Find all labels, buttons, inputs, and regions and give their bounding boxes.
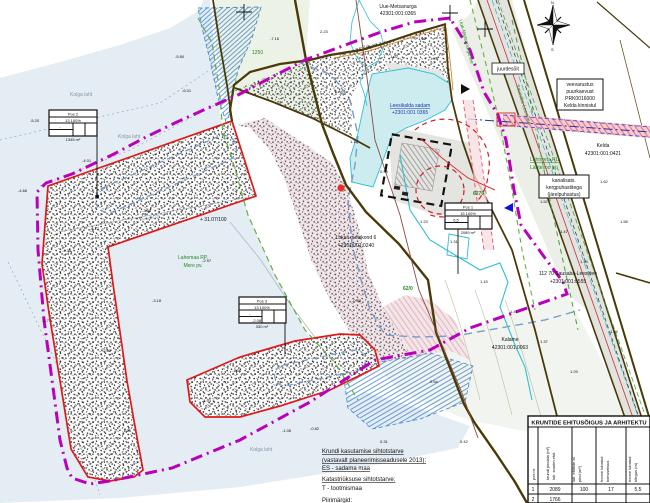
svg-text:2089 m²: 2089 m² [461,230,476,235]
svg-text:1.31: 1.31 [450,239,459,244]
svg-text:1.23: 1.23 [420,219,429,224]
svg-text:puurkaevust: puurkaevust [566,89,594,95]
svg-text:pind (m²): pind (m²) [577,465,582,482]
svg-text:kergpuhastitega: kergpuhastitega [546,185,582,191]
svg-text:42301:001:0421: 42301:001:0421 [585,151,621,157]
svg-text:0.64: 0.64 [430,379,439,384]
svg-text:veevarustus: veevarustus [567,82,594,88]
svg-text:15 100%: 15 100% [460,211,476,216]
svg-text:-5.20: -5.20 [30,118,40,123]
svg-text:S: S [551,47,554,52]
svg-text:42301:001:0063: 42301:001:0063 [492,345,528,351]
svg-text:Krundi kasutamise sihtotstarve: Krundi kasutamise sihtotstarve [322,449,404,455]
svg-text:1345 m²: 1345 m² [66,137,81,142]
svg-text:Pos 3: Pos 3 [257,299,268,304]
svg-text:2.05: 2.05 [363,44,372,49]
svg-text:-2.08: -2.08 [252,318,262,323]
svg-text:kanalisats.: kanalisats. [552,178,576,184]
svg-text:(järelpuhastus): (järelpuhastus) [547,192,580,198]
svg-text:-0.88: -0.88 [352,298,362,303]
svg-text:-2.97: -2.97 [202,258,212,263]
svg-text:ES - sadama maa: ES - sadama maa [322,466,371,472]
svg-text:krundi pindala (m²): krundi pindala (m²) [545,446,550,480]
svg-text:6,5: 6,5 [453,217,459,222]
svg-text:Mere pv.: Mere pv. [183,263,202,269]
svg-text:T - tootmismaa: T - tootmismaa [322,486,363,492]
svg-text:korruselisus: korruselisus [605,461,610,482]
svg-text:Lähtesoo pj.: Lähtesoo pj. [530,165,557,171]
svg-text:Kolga laht: Kolga laht [70,92,93,98]
svg-text:Kelda: Kelda [597,143,610,149]
svg-text:-4.66: -4.66 [18,188,28,193]
svg-text:Uue-Metsanurga: Uue-Metsanurga [379,4,416,10]
svg-text:Kalame: Kalame [502,337,519,343]
svg-text:2: 2 [532,497,535,503]
svg-text:13 100%: 13 100% [65,118,81,123]
svg-text:100: 100 [580,487,589,493]
svg-text:1.84: 1.84 [335,89,344,94]
svg-text:-5.80: -5.80 [175,54,185,59]
svg-text:pos nr.: pos nr. [531,468,536,480]
svg-text:1.29: 1.29 [570,369,579,374]
svg-text:112 70 Sausaba-Leesi tee: 112 70 Sausaba-Leesi tee [539,271,597,277]
svg-text:-2.88: -2.88 [102,348,112,353]
svg-text:lub. ehitiste al.: lub. ehitiste al. [571,456,576,482]
svg-text:1.15: 1.15 [480,279,489,284]
svg-text:lub. suurim ehit.: lub. suurim ehit. [551,452,556,480]
svg-text:Pos 2: Pos 2 [68,112,79,117]
svg-text:1.47: 1.47 [560,229,569,234]
svg-text:Kolga laht: Kolga laht [250,447,273,453]
svg-text:kõrgus (m): kõrgus (m) [633,462,638,482]
svg-text:1.12: 1.12 [350,139,359,144]
svg-text:Lehtmets RÜ: Lehtmets RÜ [530,156,560,163]
svg-text:13 100%: 13 100% [254,305,270,310]
svg-text:Kolga laht: Kolga laht [118,134,141,140]
svg-text:-1.96: -1.96 [122,428,132,433]
svg-text:Loksa metskond 6: Loksa metskond 6 [336,235,377,241]
svg-text:+2301:001:0240: +2301:001:0240 [338,243,375,249]
svg-text:62/0: 62/0 [403,286,413,292]
svg-text:Kelda kinnistul: Kelda kinnistul [564,103,596,109]
svg-text:(vastavalt planeerimisseadusel: (vastavalt planeerimisseadusele 2013): [322,458,426,464]
svg-text:PRK0016000: PRK0016000 [565,96,595,102]
svg-text:Katastriüksuse sihtotstarve:: Katastriüksuse sihtotstarve: [322,477,396,483]
svg-text:2089: 2089 [549,487,560,493]
svg-text:-0.82: -0.82 [310,426,320,431]
svg-text:42301:001:0365: 42301:001:0365 [380,11,416,17]
svg-text:17: 17 [608,487,614,493]
svg-text:-7.16: -7.16 [270,36,280,41]
svg-text:0.42: 0.42 [460,439,469,444]
svg-text:juurdesõit: juurdesõit [496,67,519,73]
svg-text:1250: 1250 [252,50,263,56]
svg-text:-3.18: -3.18 [152,298,162,303]
svg-text:-4.01: -4.01 [82,158,92,163]
svg-text:-3.58: -3.58 [142,208,152,213]
svg-text:Piirimärgid:: Piirimärgid: [322,498,352,503]
svg-text:1.41: 1.41 [510,309,519,314]
svg-text:2.23: 2.23 [320,29,329,34]
svg-text:5.5: 5.5 [635,487,642,493]
svg-text:hoone lubatud: hoone lubatud [599,457,604,482]
svg-text:1.44: 1.44 [580,259,589,264]
svg-text:-1.93: -1.93 [202,398,212,403]
svg-text:+2301:001 0365: +2301:001 0365 [392,110,429,116]
svg-text:-1.06: -1.06 [282,428,292,433]
svg-text:1766: 1766 [549,497,560,503]
svg-text:1.68: 1.68 [418,36,427,41]
svg-text:1.58: 1.58 [620,219,629,224]
svg-text:N: N [551,0,554,5]
svg-text:0.31: 0.31 [380,439,389,444]
svg-text:Leesikalda sadam: Leesikalda sadam [390,103,430,109]
svg-text:1.62: 1.62 [600,179,609,184]
svg-text:-4.35: -4.35 [62,248,72,253]
svg-text:-4.12: -4.12 [90,226,100,231]
svg-text:6270: 6270 [473,191,484,197]
svg-text:+2301:001:0555: +2301:001:0555 [550,279,587,285]
svg-text:1: 1 [532,487,535,493]
svg-text:1.52: 1.52 [540,199,549,204]
svg-text:+ 31.07/100: + 31.07/100 [200,217,227,223]
svg-text:KRUNTIDE EHITUSÕIGUS JA ARHITE: KRUNTIDE EHITUSÕIGUS JA ARHITEKTU [531,420,646,427]
svg-text:1.75: 1.75 [430,56,439,61]
svg-text:1.35: 1.35 [610,329,619,334]
svg-text:330 m²: 330 m² [256,324,269,329]
svg-text:Pos 1: Pos 1 [463,205,474,210]
svg-text:1.37: 1.37 [540,339,549,344]
svg-text:1.92: 1.92 [390,54,399,59]
svg-text:hoone lubatud: hoone lubatud [627,457,632,482]
svg-text:-3.77: -3.77 [42,318,52,323]
svg-text:0.98: 0.98 [380,169,389,174]
svg-text:-1.56: -1.56 [232,368,242,373]
svg-text:-6.01: -6.01 [182,88,192,93]
